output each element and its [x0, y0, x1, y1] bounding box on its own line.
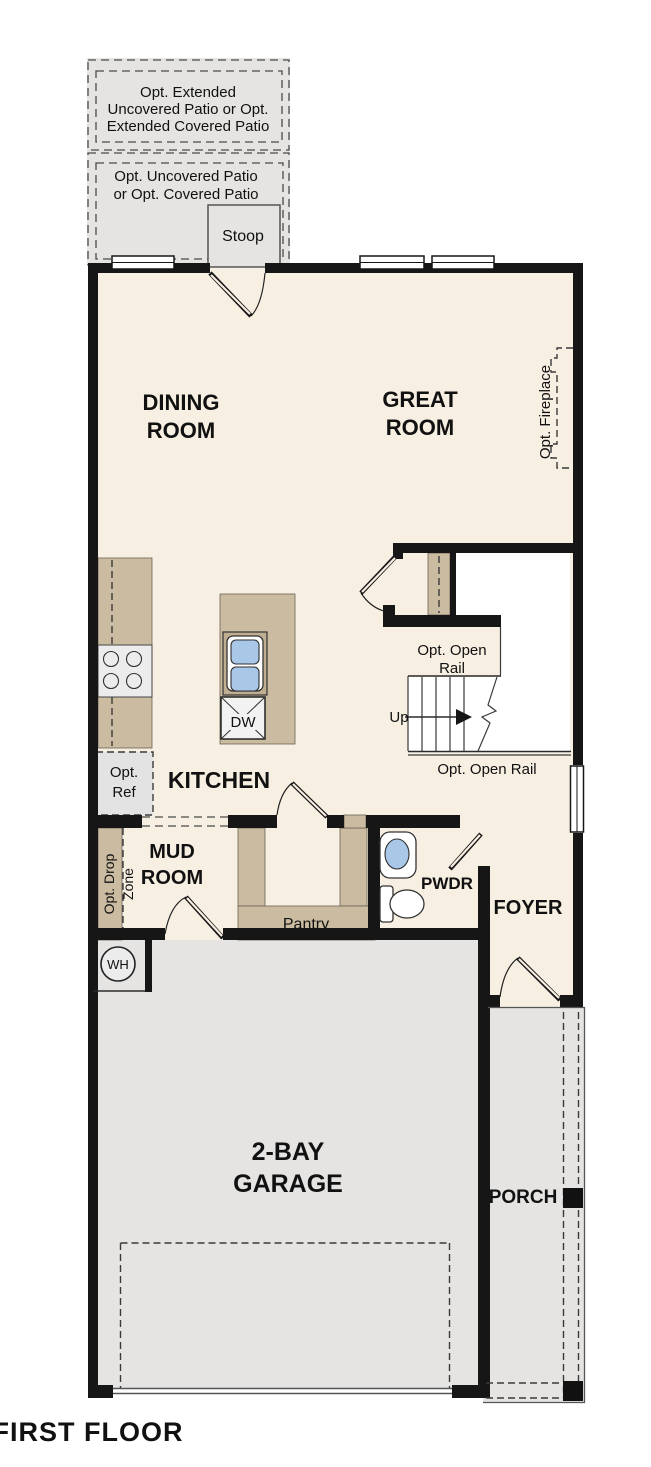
wall-mudroom-top	[88, 815, 142, 828]
wall-pantry-top	[327, 815, 344, 828]
opt-ref-label: Ref	[112, 784, 136, 801]
wh-label: WH	[107, 957, 129, 972]
wall-garage-bottom	[452, 1385, 490, 1398]
foyer-label: FOYER	[494, 897, 563, 919]
stoop-label: Stoop	[222, 228, 264, 245]
wall-foyer-bottom	[478, 995, 500, 1007]
pwdr-label: PWDR	[421, 874, 473, 893]
opt-fireplace-label: Opt. Fireplace	[537, 365, 554, 459]
wall-garage-top	[88, 928, 165, 940]
dishwasher-label: DW	[231, 714, 257, 731]
patio-extended-label: Extended Covered Patio	[107, 118, 270, 135]
dining-room-label: ROOM	[147, 418, 215, 443]
wall-pwdr-top	[366, 815, 460, 828]
drop-zone-label: Opt. Drop	[101, 853, 117, 914]
opt-open-rail-label: Opt. Open	[417, 642, 486, 659]
mud-room-label: ROOM	[141, 867, 203, 889]
great-room-label: GREAT	[382, 387, 458, 412]
wall-stairs-bottom	[383, 615, 501, 627]
patio-label: or Opt. Covered Patio	[113, 186, 258, 203]
pantry-wall-cap	[344, 815, 366, 828]
dining-room-label: DINING	[143, 390, 220, 415]
garage-label: 2-BAY	[252, 1138, 325, 1166]
wall-pwdr-left	[368, 815, 380, 940]
wall-right	[573, 263, 583, 765]
wall-garage-bottom	[88, 1385, 113, 1398]
porch-label: PORCH	[489, 1187, 558, 1208]
sink-basin	[231, 640, 259, 664]
toilet-bowl	[390, 890, 424, 918]
floor-plan-page: Opt. Extended Uncovered Patio or Opt. Ex…	[0, 0, 651, 1467]
patio-extended-label: Opt. Extended	[140, 84, 236, 101]
wall-foyer-bottom	[560, 995, 583, 1007]
opt-open-rail-label: Rail	[439, 660, 465, 677]
wall-greatroom-stairs	[393, 543, 583, 553]
porch-column	[563, 1381, 583, 1401]
mud-room-label: MUD	[149, 841, 195, 863]
wall-left	[88, 263, 98, 1398]
sink-basin	[231, 667, 259, 691]
kitchen-label: KITCHEN	[168, 767, 270, 793]
plan-title: FIRST FLOOR	[0, 1417, 183, 1447]
stairwell-open-area	[501, 615, 570, 752]
patio-label: Opt. Uncovered Patio	[114, 168, 257, 185]
wall-pantry-top	[228, 815, 277, 828]
first-floor-plan: Opt. Extended Uncovered Patio or Opt. Ex…	[0, 0, 651, 1467]
up-label: Up	[389, 709, 408, 726]
wall-garage-right	[478, 866, 490, 1398]
opt-open-rail-label: Opt. Open Rail	[437, 761, 536, 778]
wall-garage-top	[223, 928, 490, 940]
garage-label: GARAGE	[233, 1170, 343, 1198]
patio-extended-label: Uncovered Patio or Opt.	[108, 101, 269, 118]
stairwell-open-area	[456, 553, 570, 615]
wall-right	[573, 833, 583, 1007]
opt-ref-label: Opt.	[110, 764, 138, 781]
pantry-shelf	[238, 828, 265, 906]
drop-zone-label: Zone	[120, 868, 136, 900]
porch-column	[563, 1188, 583, 1208]
wall-chase-edge	[450, 553, 456, 617]
wall-wh-niche	[145, 940, 152, 992]
pantry-shelf	[340, 828, 367, 906]
sink-bowl	[385, 839, 409, 869]
great-room-label: ROOM	[386, 415, 454, 440]
stoop: Stoop	[208, 205, 280, 267]
optional-refrigerator: Opt. Ref	[96, 752, 153, 815]
